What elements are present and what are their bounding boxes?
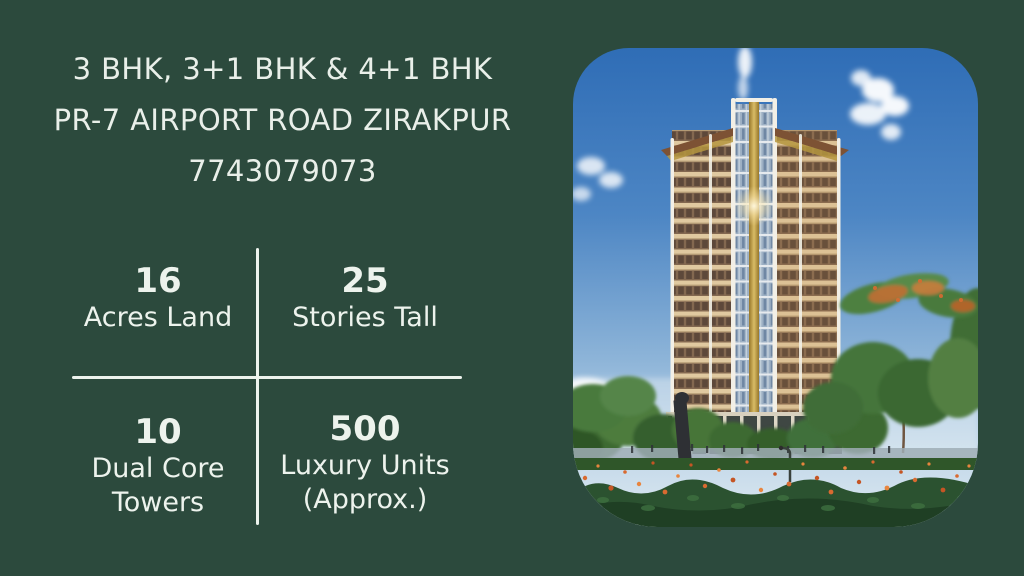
headline-block: 3 BHK, 3+1 BHK & 4+1 BHK PR-7 AIRPORT RO… [30,44,535,197]
building-render-illustration [573,48,978,527]
sun-glint [734,186,774,226]
stat-label: Acres Land [53,301,263,335]
stat-label: Dual Core Towers [53,452,263,520]
stat-value: 500 [255,409,475,449]
stats-divider-horizontal [72,376,462,379]
building-photo [573,48,978,527]
stat-acres-land: 16 Acres Land [53,261,263,335]
stat-luxury-units: 500 Luxury Units (Approx.) [255,409,475,517]
core-fin-left [731,98,736,452]
stat-value: 10 [53,412,263,452]
unit-config-text: 3 BHK, 3+1 BHK & 4+1 BHK [30,44,535,95]
stat-label: Luxury Units (Approx.) [255,449,475,517]
flyer-canvas: 3 BHK, 3+1 BHK & 4+1 BHK PR-7 AIRPORT RO… [0,0,1024,576]
stat-value: 16 [53,261,263,301]
stat-dual-core-towers: 10 Dual Core Towers [53,412,263,520]
hedge [573,458,978,470]
core-fin-right [773,98,778,452]
stat-label: Stories Tall [262,301,468,335]
stat-stories-tall: 25 Stories Tall [262,261,468,335]
gold-strip [749,100,759,452]
stat-value: 25 [262,261,468,301]
location-text: PR-7 AIRPORT ROAD ZIRAKPUR [30,95,535,146]
phone-number: 7743079073 [30,146,535,197]
